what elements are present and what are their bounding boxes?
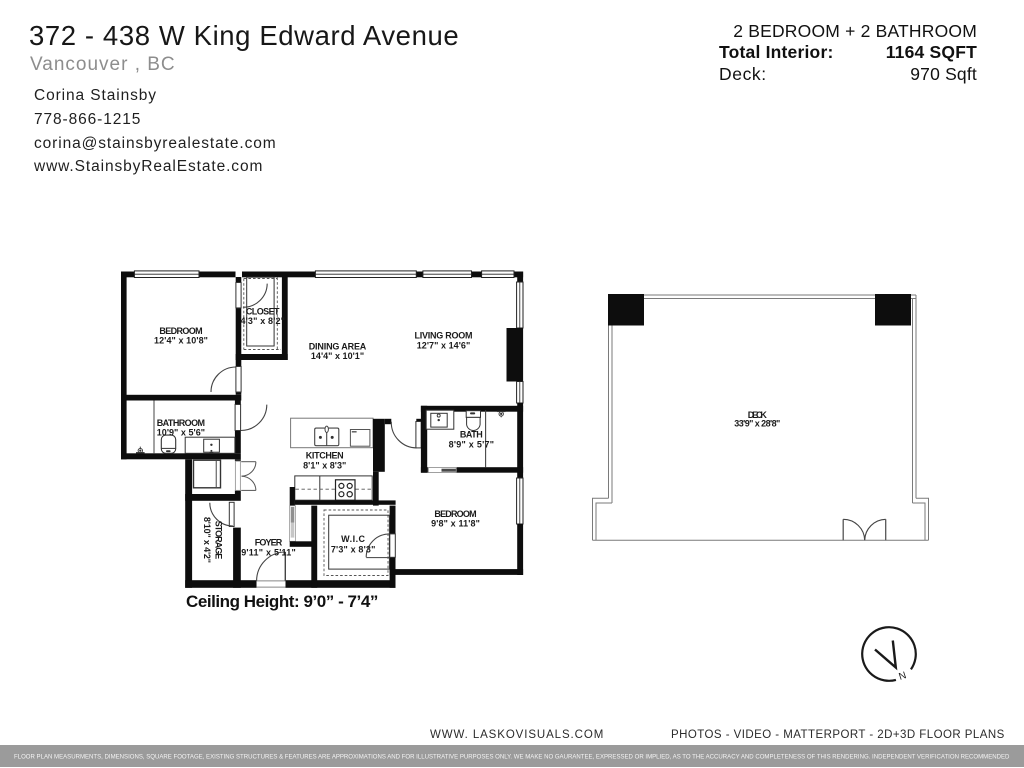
svg-text:9'8" x 11'8": 9'8" x 11'8": [431, 518, 480, 528]
svg-text:10'9" x 5'6": 10'9" x 5'6": [157, 428, 205, 438]
svg-text:KITCHEN: KITCHEN: [306, 451, 344, 461]
svg-text:BATHROOM: BATHROOM: [157, 418, 205, 428]
svg-text:BEDROOM: BEDROOM: [159, 326, 202, 336]
svg-text:BATH: BATH: [460, 430, 483, 440]
svg-text:LIVING ROOM: LIVING ROOM: [414, 331, 472, 341]
svg-text:33'9" x 28'8": 33'9" x 28'8": [734, 419, 780, 429]
svg-text:8'1" x 8'3": 8'1" x 8'3": [303, 460, 346, 470]
svg-text:W.I.C: W.I.C: [341, 534, 365, 544]
svg-text:4'3" x 8'2": 4'3" x 8'2": [240, 316, 285, 326]
svg-text:FOYER: FOYER: [255, 537, 283, 547]
svg-text:CLOSET: CLOSET: [246, 307, 280, 317]
svg-text:14'4" x 10'1": 14'4" x 10'1": [311, 351, 364, 361]
svg-text:N: N: [898, 670, 908, 683]
svg-text:STORAGE8'10" x 4'2": STORAGE8'10" x 4'2": [202, 517, 224, 563]
svg-text:12'7" x 14'6": 12'7" x 14'6": [417, 341, 471, 351]
svg-text:9'11" x 5'11": 9'11" x 5'11": [241, 548, 296, 558]
svg-text:7'3" x 8'3": 7'3" x 8'3": [331, 545, 376, 555]
svg-text:12'4" x 10'8": 12'4" x 10'8": [154, 336, 208, 346]
svg-text:8'9" x 5'7": 8'9" x 5'7": [449, 439, 494, 449]
